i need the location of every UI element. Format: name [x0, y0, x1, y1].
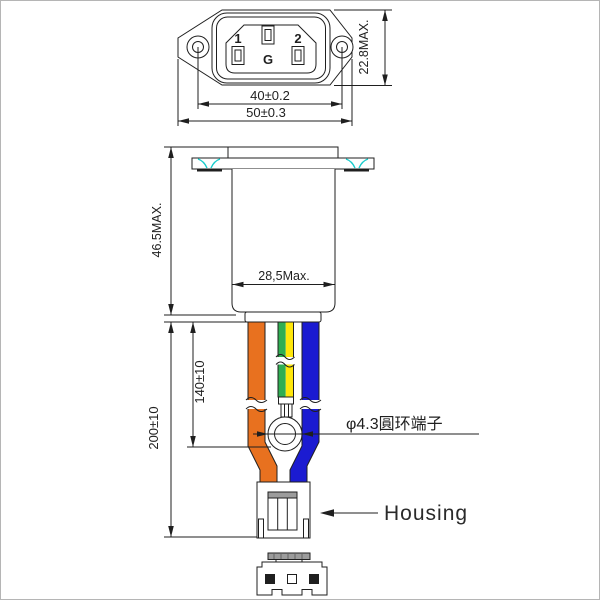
arrowhead [168, 304, 174, 315]
housing-front-view: Housing [257, 482, 468, 538]
dim-465-text: 46.5MAX. [150, 203, 164, 258]
terminal-neck [281, 404, 292, 417]
break-gap [301, 400, 320, 409]
contact-center [288, 575, 297, 584]
dim-140-text: 140±10 [192, 360, 207, 403]
arrowhead [341, 118, 352, 124]
ring-terminal-label: φ4.3圓环端子 [346, 415, 443, 433]
arrowhead [382, 75, 388, 86]
housing-bottom-view [257, 553, 327, 595]
dim-50-text: 50±0.3 [246, 105, 286, 120]
drawing-canvas: 1 2 G 40±0.2 50±0.3 22.8MAX. [0, 0, 600, 600]
arrowhead [382, 10, 388, 21]
cable-assembly [246, 322, 321, 482]
arrowhead [331, 101, 342, 107]
ground-label: G [263, 52, 273, 67]
arrowhead [168, 526, 174, 537]
dim-200-text: 200±10 [146, 406, 161, 449]
arrowhead [190, 322, 196, 333]
pin-1-label: 1 [234, 31, 241, 46]
terminal-crimp-barrel [279, 397, 294, 404]
arrowhead [178, 118, 189, 124]
break-gap [247, 400, 266, 409]
side-view-dimensions: 46.5MAX. [150, 147, 236, 315]
body-base [245, 312, 321, 322]
pin-1 [232, 47, 244, 65]
pin-2-label: 2 [294, 31, 301, 46]
contact-right [309, 574, 319, 584]
side-view: 28,5Max. [192, 147, 374, 322]
housing-label: Housing [384, 502, 468, 525]
arrowhead [168, 147, 174, 158]
arrowhead [198, 101, 209, 107]
dim-285-text: 28,5Max. [258, 269, 309, 283]
pin-ground [262, 26, 274, 44]
dim-228-text: 22.8MAX. [357, 20, 371, 75]
arrowhead [190, 436, 196, 447]
arrowhead [168, 322, 174, 333]
housing-callout-arrowhead [320, 509, 334, 517]
housing-latch-bar [268, 492, 297, 498]
body-outline [232, 169, 335, 312]
pin-2 [292, 47, 304, 65]
technical-drawing: 1 2 G 40±0.2 50±0.3 22.8MAX. [0, 0, 600, 600]
front-view: 1 2 G [178, 10, 353, 85]
dim-40-text: 40±0.2 [250, 88, 290, 103]
top-cap [228, 147, 338, 158]
contact-left [265, 574, 275, 584]
